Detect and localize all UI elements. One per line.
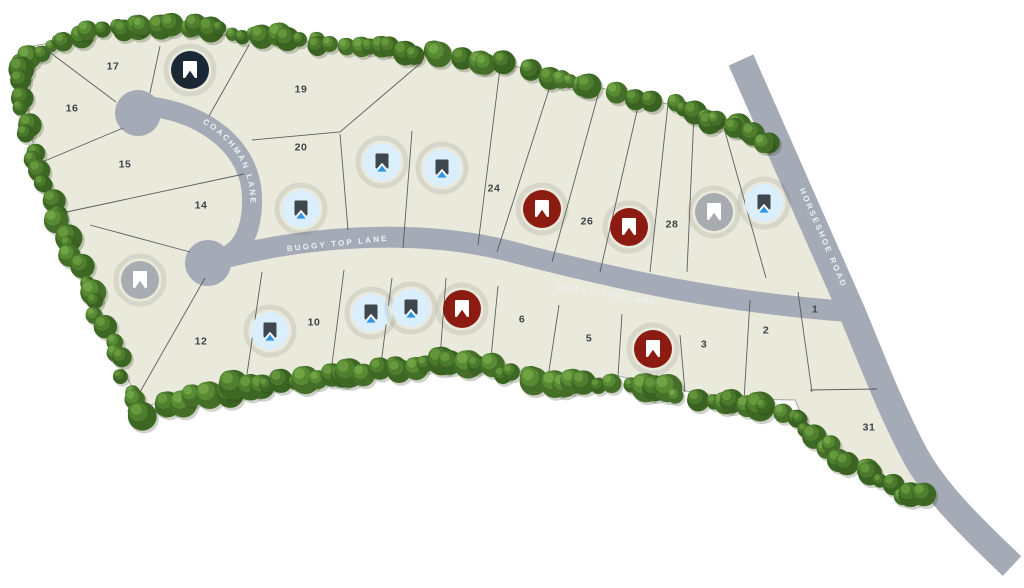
lot-marker-navy[interactable]	[166, 46, 214, 94]
tree-canopy	[407, 47, 414, 54]
tree-canopy	[25, 152, 32, 159]
tree-canopy	[669, 95, 676, 102]
tree-canopy	[389, 360, 398, 369]
tree-canopy	[544, 373, 555, 384]
lot-number-2: 2	[763, 325, 769, 337]
tree-canopy	[794, 413, 800, 419]
tree-canopy	[574, 372, 583, 381]
tree-canopy	[127, 391, 135, 399]
tree-canopy	[79, 22, 87, 30]
tree-canopy	[709, 113, 715, 119]
tree-canopy	[396, 43, 405, 52]
tree-canopy	[418, 357, 425, 364]
tree-canopy	[708, 395, 714, 401]
lot-number-26: 26	[581, 216, 594, 228]
tree-canopy	[608, 84, 616, 92]
tree-canopy	[96, 317, 105, 326]
lot-marker-red[interactable]	[605, 203, 653, 251]
tree-canopy	[726, 120, 734, 128]
lot-number-17: 17	[107, 61, 120, 73]
tree-canopy	[46, 211, 55, 220]
lot-marker-red[interactable]	[629, 325, 677, 373]
tree-canopy	[340, 39, 347, 46]
tree-canopy	[429, 44, 439, 54]
tree-canopy	[523, 61, 529, 67]
tree-canopy	[222, 372, 233, 383]
tree-canopy	[657, 376, 668, 387]
tree-canopy	[88, 294, 94, 300]
lot-number-19: 19	[295, 84, 308, 96]
tree-canopy	[87, 308, 93, 314]
tree-canopy	[645, 377, 655, 387]
lot-marker-blue[interactable]	[277, 185, 325, 233]
tree-canopy	[227, 29, 232, 34]
lot-marker-blue[interactable]	[418, 144, 466, 192]
tree-canopy	[11, 59, 21, 69]
tree-canopy	[294, 368, 305, 379]
lot-number-6: 6	[519, 314, 525, 326]
tree-canopy	[453, 49, 462, 58]
tree-canopy	[381, 38, 389, 46]
tree-canopy	[30, 161, 38, 169]
tree-canopy	[96, 23, 102, 29]
tree-canopy	[323, 37, 329, 43]
tree-canopy	[669, 389, 675, 395]
lot-marker-gray[interactable]	[116, 256, 164, 304]
tree-canopy	[187, 15, 195, 23]
tree-canopy	[757, 400, 763, 406]
tree-canopy	[874, 475, 879, 480]
tree-canopy	[58, 227, 68, 237]
lot-number-16: 16	[66, 103, 79, 115]
tree-canopy	[134, 18, 141, 25]
tree-canopy	[838, 454, 847, 463]
tree-canopy	[173, 392, 183, 402]
tree-canopy	[363, 40, 369, 46]
tree-canopy	[310, 372, 317, 379]
tree-canopy	[860, 463, 869, 472]
lot-marker-red[interactable]	[438, 285, 486, 333]
tree-canopy	[240, 376, 250, 386]
tree-canopy	[62, 237, 68, 243]
tree-canopy	[457, 352, 468, 363]
lot-marker-blue[interactable]	[246, 307, 294, 355]
tree-canopy	[901, 484, 910, 493]
lot-number-15: 15	[119, 159, 132, 171]
tree-canopy	[625, 379, 631, 385]
tree-canopy	[677, 103, 683, 109]
lot-marker-gray[interactable]	[690, 188, 738, 236]
tree-canopy	[496, 368, 503, 375]
tree-canopy	[541, 69, 550, 78]
tree-canopy	[115, 21, 123, 29]
tree-canopy	[722, 391, 731, 400]
tree-canopy	[114, 349, 122, 357]
tree-canopy	[554, 72, 561, 79]
tree-canopy	[799, 424, 805, 430]
tree-canopy	[157, 393, 167, 403]
tree-canopy	[337, 361, 348, 372]
tree-canopy	[592, 379, 598, 385]
tree-canopy	[627, 91, 635, 99]
tree-canopy	[504, 365, 511, 372]
site-plan: COACHMAN LANEHORSESHOE ROADBUGGY TOP LAN…	[0, 0, 1024, 588]
cul-de-sac-1	[115, 90, 161, 136]
tree-canopy	[108, 335, 114, 341]
lot-marker-blue[interactable]	[740, 179, 788, 227]
tree-canopy	[604, 375, 611, 382]
tree-canopy	[13, 89, 22, 98]
lot-number-28: 28	[666, 219, 679, 231]
tree-canopy	[56, 34, 63, 41]
tree-canopy	[756, 135, 763, 142]
tree-canopy	[83, 282, 93, 292]
tree-canopy	[131, 404, 142, 415]
tree-canopy	[564, 75, 569, 80]
tree-canopy	[477, 55, 485, 63]
tree-canopy	[214, 22, 219, 27]
tree-canopy	[114, 370, 120, 376]
lot-number-24: 24	[488, 183, 501, 195]
tree-canopy	[36, 47, 42, 53]
tree-canopy	[775, 405, 782, 412]
tree-canopy	[522, 369, 533, 380]
tree-canopy	[495, 53, 503, 61]
tree-canopy	[440, 352, 449, 361]
tree-canopy	[294, 33, 300, 39]
tree-canopy	[198, 384, 208, 394]
tree-canopy	[19, 47, 28, 56]
tree-canopy	[162, 15, 171, 24]
tree-canopy	[60, 246, 69, 255]
tree-canopy	[579, 75, 589, 85]
tree-canopy	[309, 38, 317, 46]
tree-canopy	[252, 26, 261, 35]
lot-marker-red[interactable]	[518, 185, 566, 233]
tree-canopy	[12, 71, 20, 79]
tree-canopy	[371, 359, 380, 368]
tree-canopy	[201, 19, 211, 29]
tree-canopy	[483, 355, 492, 364]
tree-canopy	[19, 126, 26, 133]
tree-canopy	[915, 484, 924, 493]
site-map-canvas: COACHMAN LANEHORSESHOE ROADBUGGY TOP LAN…	[0, 0, 1024, 588]
cul-de-sac-2	[185, 240, 231, 286]
tree-canopy	[563, 371, 573, 381]
lot-number-10: 10	[308, 317, 321, 329]
lot-number-12: 12	[195, 336, 208, 348]
tree-canopy	[46, 41, 51, 46]
tree-canopy	[744, 124, 753, 133]
tree-canopy	[824, 437, 831, 444]
tree-canopy	[469, 357, 476, 364]
tree-canopy	[73, 256, 82, 265]
tree-canopy	[260, 378, 266, 384]
tree-canopy	[271, 371, 280, 380]
tree-canopy	[278, 29, 287, 38]
tree-canopy	[643, 92, 651, 100]
tree-canopy	[14, 101, 20, 107]
tree-canopy	[151, 17, 161, 27]
tree-canopy	[407, 359, 416, 368]
lot-number-31: 31	[863, 422, 876, 434]
lot-number-20: 20	[295, 142, 308, 154]
tree-canopy	[45, 191, 54, 200]
lot-number-5: 5	[586, 333, 592, 345]
lot-marker-blue[interactable]	[387, 284, 435, 332]
lot-number-3: 3	[701, 339, 707, 351]
lot-marker-blue[interactable]	[358, 138, 406, 186]
tree-canopy	[355, 365, 364, 374]
tree-canopy	[885, 476, 893, 484]
tree-canopy	[323, 365, 332, 374]
lot-number-1: 1	[812, 304, 818, 316]
tree-canopy	[689, 391, 698, 400]
tree-canopy	[36, 176, 43, 183]
tree-canopy	[353, 38, 361, 46]
lot-number-14: 14	[195, 200, 208, 212]
tree-canopy	[805, 426, 814, 435]
tree-canopy	[184, 386, 192, 394]
tree-canopy	[237, 31, 243, 37]
tree-canopy	[685, 102, 694, 111]
tree-canopy	[20, 115, 29, 124]
